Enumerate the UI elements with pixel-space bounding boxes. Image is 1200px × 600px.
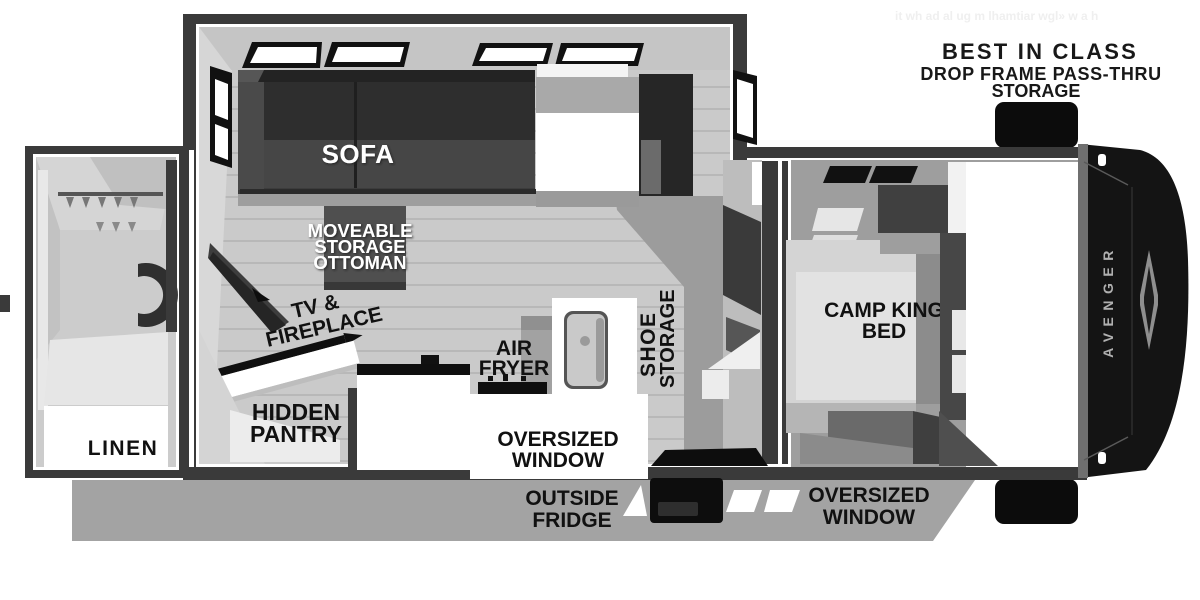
svg-text:FRIDGE: FRIDGE: [532, 509, 611, 532]
svg-text:PANTRY: PANTRY: [250, 421, 342, 447]
svg-text:STORAGE: STORAGE: [657, 289, 679, 388]
svg-text:BED: BED: [862, 320, 906, 343]
svg-text:STORAGE: STORAGE: [992, 81, 1081, 101]
svg-text:SOFA: SOFA: [322, 139, 395, 169]
svg-text:it wh ad al ug m lhamtiar wgl»: it wh ad al ug m lhamtiar wgl» w a h: [895, 9, 1098, 23]
svg-text:FRYER: FRYER: [479, 357, 549, 380]
svg-text:AVENGER: AVENGER: [1100, 244, 1116, 358]
svg-text:OVERSIZED: OVERSIZED: [497, 428, 618, 451]
svg-text:WINDOW: WINDOW: [823, 506, 915, 529]
svg-text:LINEN: LINEN: [88, 437, 159, 460]
svg-text:OTTOMAN: OTTOMAN: [313, 252, 406, 273]
svg-text:OVERSIZED: OVERSIZED: [808, 484, 929, 507]
svg-text:BEST IN CLASS: BEST IN CLASS: [942, 39, 1138, 64]
svg-text:CAMP KING: CAMP KING: [824, 299, 944, 322]
svg-text:OUTSIDE: OUTSIDE: [525, 487, 618, 510]
svg-text:WINDOW: WINDOW: [512, 449, 604, 472]
